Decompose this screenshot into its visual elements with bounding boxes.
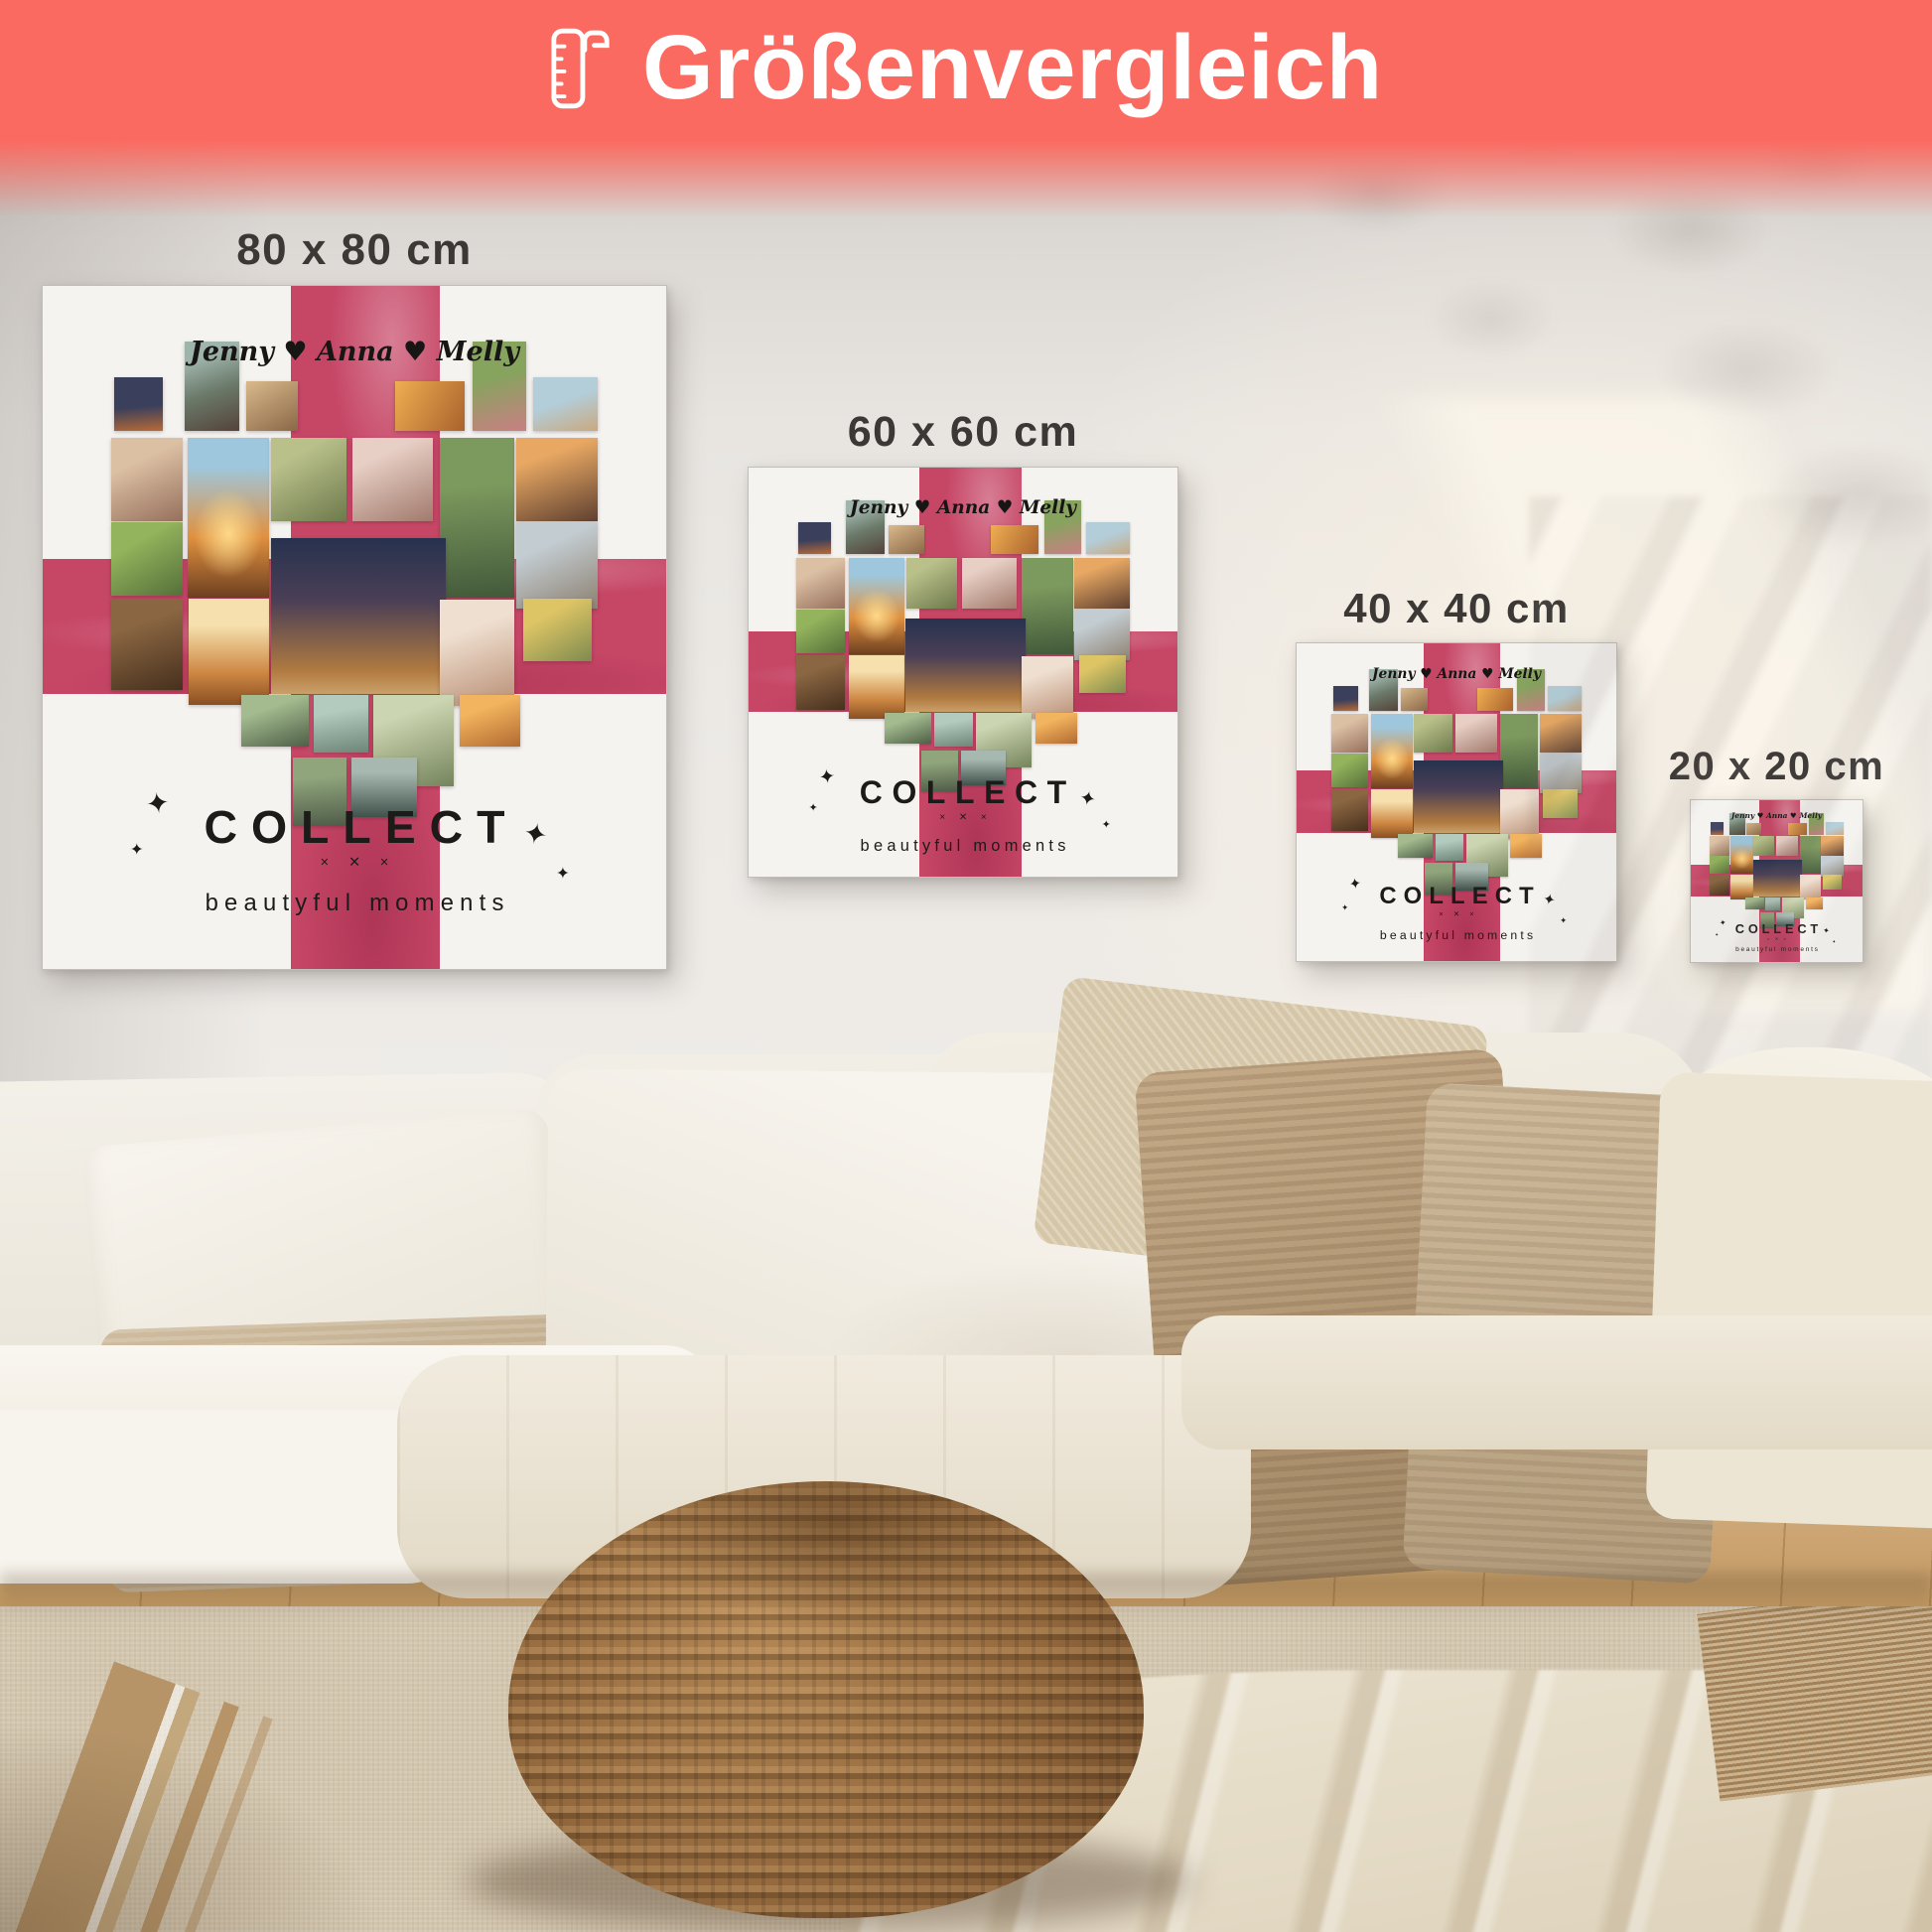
- rattan-pouf: [508, 1481, 1144, 1918]
- ruler-icon: [549, 23, 613, 112]
- pillow-cream-right: [1645, 1071, 1932, 1529]
- page-title: Größenvergleich: [642, 22, 1383, 113]
- size-comparison-image: 80 x 80 cm Jenny ♥ Anna ♥ Melly ✦ ✦ ✦ ✦ …: [0, 0, 1932, 1932]
- header-banner: Größenvergleich: [0, 0, 1932, 226]
- sofa-chaise-seat: [1181, 1315, 1932, 1449]
- header-content: Größenvergleich: [549, 22, 1383, 113]
